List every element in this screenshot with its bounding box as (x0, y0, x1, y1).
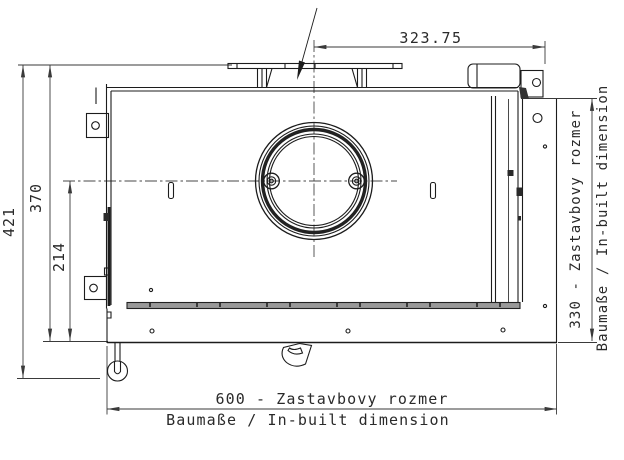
bracket-hole (533, 79, 541, 87)
bracket-hole (92, 122, 100, 130)
wall-clip-right (517, 188, 523, 197)
dim-label-330-sk: 330 - Zastavbovy rozmer (568, 109, 584, 328)
wall-bracket-lower-left (85, 277, 107, 300)
dim-label-421: 421 (0, 207, 18, 237)
handle-knob (108, 343, 128, 381)
screw-hole (501, 328, 505, 332)
dim-label-600-de-en: Baumaße / In-built dimension (166, 411, 450, 429)
flue-spigot-trapezoid (267, 69, 358, 88)
body-left-wall (104, 84, 112, 309)
keyhole-slot-left (169, 183, 174, 199)
corner-bracket-top-right (519, 71, 543, 100)
wall-clip-right-2 (508, 170, 514, 176)
dim-label-214: 214 (50, 242, 68, 272)
screw-hole (346, 329, 350, 333)
stove-insert-top-view-drawing: 323.75 421 370 214 600 - Zastavbovy rozm… (0, 0, 624, 460)
screw-hole (150, 329, 154, 333)
dim-label-600-sk: 600 - Zastavbovy rozmer (215, 390, 448, 408)
wall-clip-left (104, 213, 110, 221)
front-door-bar (127, 303, 520, 309)
flange-leg-left (258, 69, 267, 88)
screw-hole (533, 114, 542, 123)
dim-label-330-de-en: Baumaße / In-built dimension (595, 85, 611, 352)
body-right-walls (492, 91, 523, 302)
bracket-hole (90, 284, 98, 292)
door-latch (282, 344, 311, 367)
screw-hole (543, 304, 546, 307)
body-top-edge (96, 88, 518, 105)
dim-label-323: 323.75 (399, 29, 462, 47)
wall-bracket-upper-left (87, 114, 109, 138)
keyhole-slot-right (431, 183, 436, 199)
flange-leg-right (358, 69, 367, 88)
screw-hole (149, 288, 152, 291)
rear-mounting-flange (228, 64, 402, 88)
insert-body (85, 64, 558, 382)
control-housing (468, 64, 520, 88)
screw-hole (543, 145, 546, 148)
dim-label-370: 370 (27, 183, 45, 213)
technical-drawing-canvas: 323.75 421 370 214 600 - Zastavbovy rozm… (0, 0, 624, 460)
